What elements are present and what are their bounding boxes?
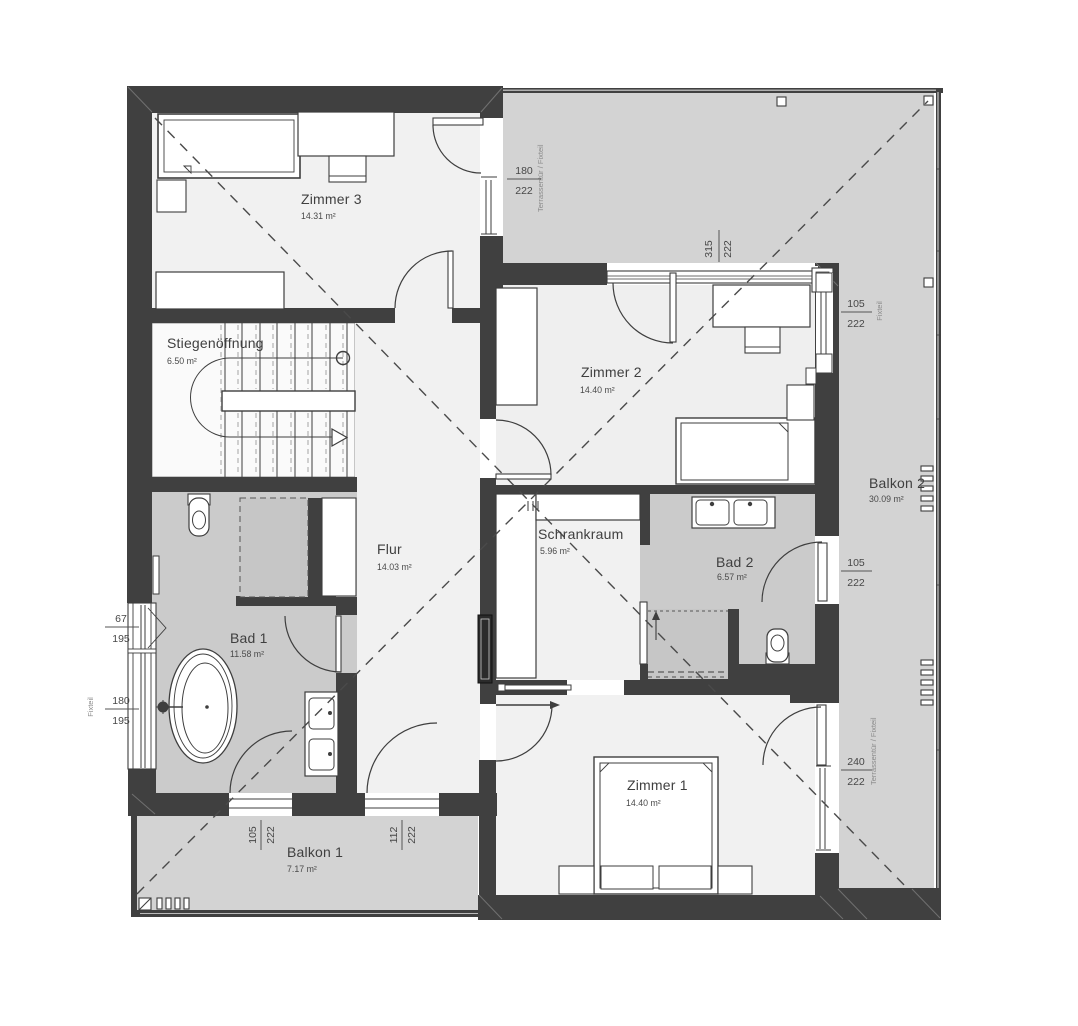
svg-text:195: 195	[112, 715, 130, 727]
svg-text:30.09 m²: 30.09 m²	[869, 494, 904, 504]
svg-text:5.96 m²: 5.96 m²	[540, 546, 570, 556]
svg-text:14.03 m²: 14.03 m²	[377, 562, 412, 572]
svg-text:Zimmer 1: Zimmer 1	[627, 777, 688, 793]
svg-text:14.40 m²: 14.40 m²	[626, 798, 661, 808]
svg-text:180: 180	[112, 695, 130, 707]
svg-text:6.50 m²: 6.50 m²	[167, 356, 197, 366]
svg-text:Terrassentür / Fixteil: Terrassentür / Fixteil	[869, 717, 878, 785]
svg-text:Bad 1: Bad 1	[230, 630, 268, 646]
svg-text:222: 222	[406, 826, 418, 844]
svg-text:Zimmer 2: Zimmer 2	[581, 364, 642, 380]
svg-text:222: 222	[722, 240, 734, 258]
svg-text:Balkon 1: Balkon 1	[287, 844, 343, 860]
svg-text:6.57 m²: 6.57 m²	[717, 572, 747, 582]
svg-text:Schrankraum: Schrankraum	[538, 526, 623, 542]
svg-text:222: 222	[847, 577, 865, 589]
svg-text:Bad 2: Bad 2	[716, 554, 754, 570]
svg-text:Flur: Flur	[377, 541, 402, 557]
svg-text:180: 180	[515, 165, 533, 177]
svg-text:Fixteil: Fixteil	[86, 697, 95, 717]
svg-text:Fixteil: Fixteil	[875, 301, 884, 321]
svg-text:Zimmer 3: Zimmer 3	[301, 191, 362, 207]
svg-text:222: 222	[847, 776, 865, 788]
svg-text:14.40 m²: 14.40 m²	[580, 385, 615, 395]
svg-text:Balkon 2: Balkon 2	[869, 475, 925, 491]
svg-text:222: 222	[515, 185, 533, 197]
svg-text:315: 315	[703, 240, 715, 258]
svg-text:11.58 m²: 11.58 m²	[230, 649, 264, 659]
svg-text:222: 222	[847, 318, 865, 330]
svg-text:7.17 m²: 7.17 m²	[287, 864, 317, 874]
svg-text:105: 105	[847, 298, 865, 310]
svg-text:195: 195	[112, 633, 130, 645]
svg-text:Stiegenöffnung: Stiegenöffnung	[167, 335, 264, 351]
svg-text:112: 112	[388, 826, 400, 843]
svg-text:105: 105	[247, 826, 259, 844]
svg-text:Terrassentür / Fixteil: Terrassentür / Fixteil	[536, 144, 545, 212]
svg-text:222: 222	[265, 826, 277, 844]
svg-text:14.31 m²: 14.31 m²	[301, 211, 336, 221]
svg-text:105: 105	[847, 557, 865, 569]
svg-text:67: 67	[115, 613, 127, 625]
svg-text:240: 240	[847, 756, 865, 768]
